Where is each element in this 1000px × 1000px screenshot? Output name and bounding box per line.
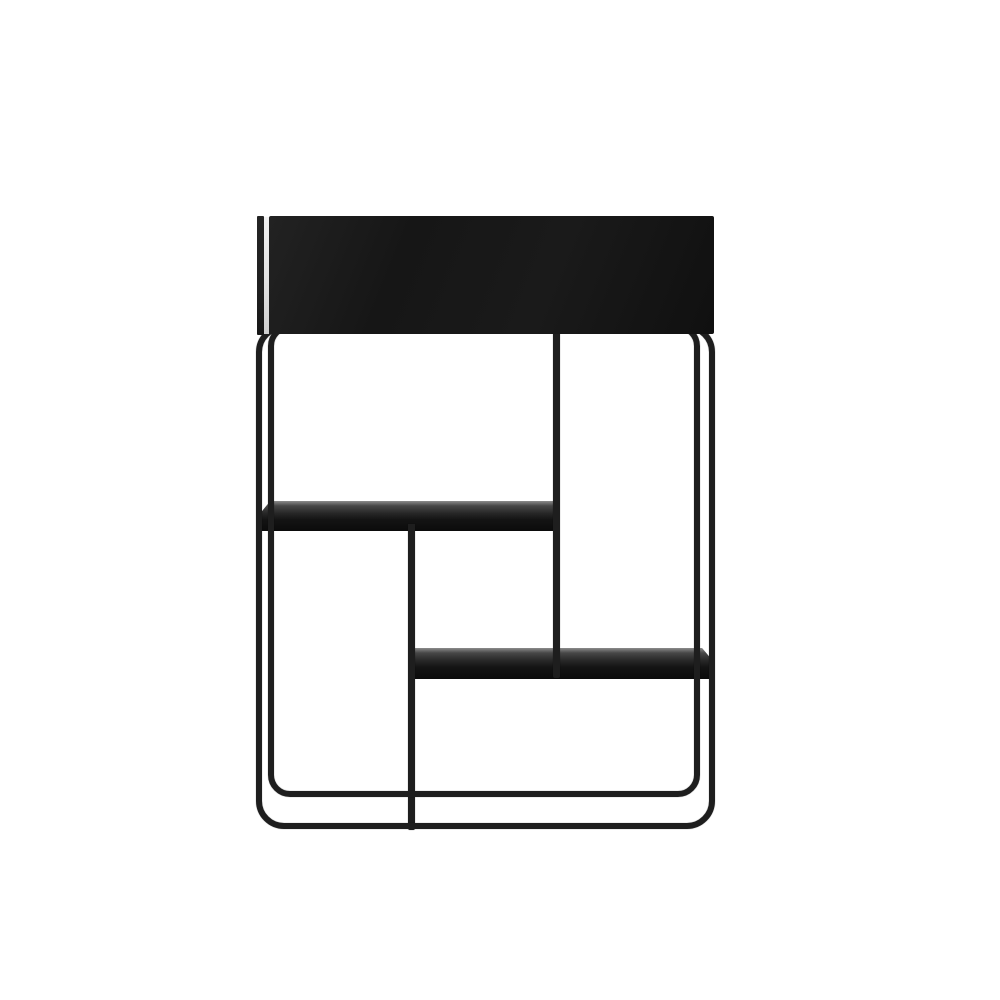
planter-box-side-edge [257, 216, 264, 335]
plant-box-console-photo [0, 0, 1000, 1000]
front-tubular-frame [256, 324, 715, 829]
studio-background [0, 0, 1000, 1000]
planter-box-top [269, 216, 714, 334]
